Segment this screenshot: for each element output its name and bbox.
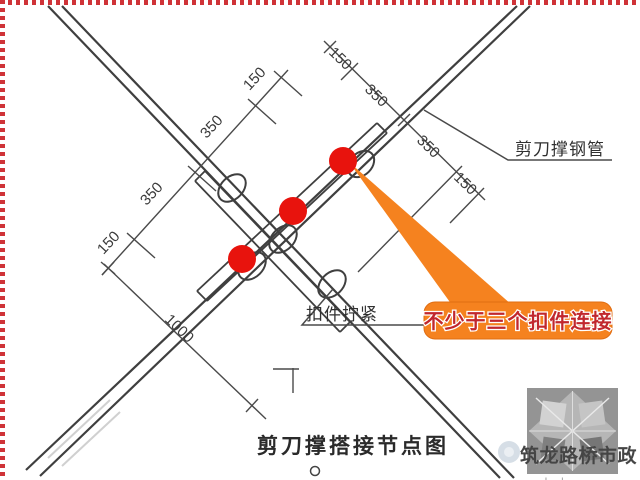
echo-line xyxy=(62,412,120,466)
title-group: 剪刀撑搭接节点图 xyxy=(257,434,449,476)
dotted-border-left xyxy=(0,0,5,480)
watermark-site: zhulong.com xyxy=(537,475,622,480)
dim-tick xyxy=(274,71,302,96)
watermark: 筑龙路桥市政 zhulong.com xyxy=(498,388,638,480)
coupler-markers xyxy=(228,147,357,273)
dim-tick xyxy=(248,99,276,124)
coupler-marker-dot xyxy=(279,197,307,225)
dim-tick xyxy=(127,233,155,258)
coupler-label: 扣件拧紧 xyxy=(306,305,378,324)
dim-label: 350 xyxy=(361,81,391,111)
callout: 不少于三个扣件连接 xyxy=(349,162,613,339)
coupler-icon xyxy=(213,169,251,207)
lap-band-cap xyxy=(377,123,387,133)
pipe-label-group: 剪刀撑钢管 xyxy=(424,110,612,160)
coupler-icon xyxy=(313,265,351,303)
watermark-brand: 筑龙路桥市政 xyxy=(520,444,638,467)
coupler-label-group: 扣件拧紧 xyxy=(302,289,430,325)
diagram-canvas: 150 350 350 150 150 350 350 150 1000 xyxy=(0,0,640,480)
dim-lap-length: 1000 xyxy=(102,262,299,419)
lap-band-cap xyxy=(197,291,207,301)
watermark-badge-icon xyxy=(504,447,514,457)
dim-label: 150 xyxy=(94,228,124,258)
dim-label: 350 xyxy=(137,179,167,209)
drawing-title: 剪刀撑搭接节点图 xyxy=(257,434,449,458)
coupler-icon xyxy=(264,220,302,258)
pipe-label: 剪刀撑钢管 xyxy=(515,140,605,159)
dotted-border-top xyxy=(0,0,640,5)
dim-chain-left: 150 350 350 150 xyxy=(94,64,302,275)
scale-circle-icon xyxy=(311,467,320,476)
dim-label: 150 xyxy=(325,44,355,74)
drawing-page: 150 350 350 150 150 350 350 150 1000 xyxy=(0,0,640,480)
callout-pointer xyxy=(349,162,512,305)
dim-label: 350 xyxy=(413,132,443,162)
coupler-marker-dot xyxy=(329,147,357,175)
lap-band-edge xyxy=(205,171,350,322)
coupler-marker-dot xyxy=(228,245,256,273)
dim-label: 350 xyxy=(197,112,227,142)
dim-label: 150 xyxy=(240,64,270,94)
pipe-a-line-2 xyxy=(62,6,514,478)
callout-text: 不少于三个扣件连接 xyxy=(424,309,613,333)
